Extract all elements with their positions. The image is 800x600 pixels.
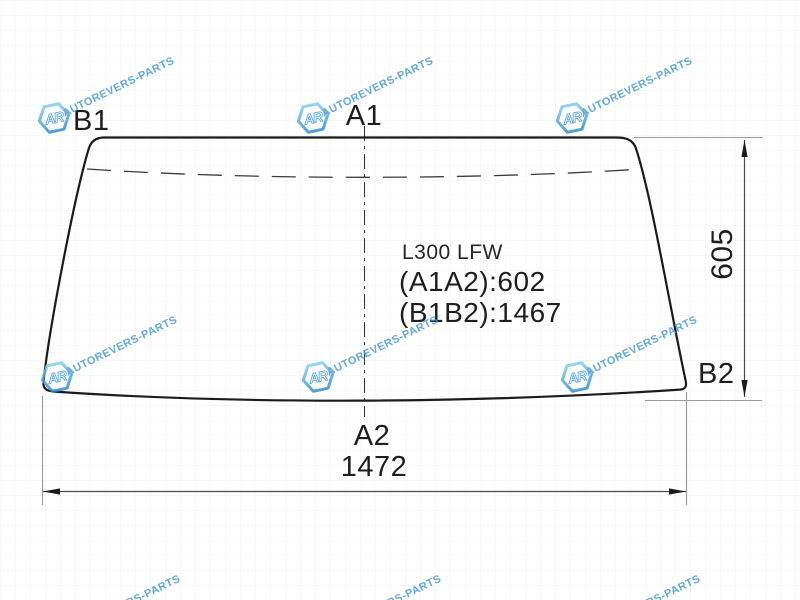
- watermark: AR AUTOREVERS-PARTS: [296, 101, 330, 135]
- shade-band-dashed-line: [87, 169, 634, 177]
- part-name: L300 LFW: [402, 242, 503, 263]
- diagram-canvas: B1 A1 B2 A2 1472 605 L300 LFW (A1A2):602…: [0, 0, 800, 600]
- watermark: AR AUTOREVERS-PARTS: [40, 360, 74, 394]
- measurement-a1a2: (A1A2):602: [399, 268, 546, 296]
- dimension-value-bottom-width: 1472: [332, 453, 416, 482]
- watermark: AR AUTOREVERS-PARTS: [555, 101, 589, 135]
- arrowhead-down-icon: [741, 380, 747, 397]
- arrowhead-up-icon: [741, 140, 747, 157]
- arrowhead-left-icon: [43, 488, 60, 494]
- arrowhead-right-icon: [669, 488, 686, 494]
- watermark: AR AUTOREVERS-PARTS: [301, 360, 335, 394]
- watermark: AR AUTOREVERS-PARTS: [560, 360, 594, 394]
- watermark: AR AUTOREVERS-PARTS: [37, 101, 71, 135]
- dimension-value-right-height: 605: [708, 201, 744, 307]
- point-label-b2: B2: [698, 360, 734, 389]
- point-label-a2: A2: [337, 422, 407, 451]
